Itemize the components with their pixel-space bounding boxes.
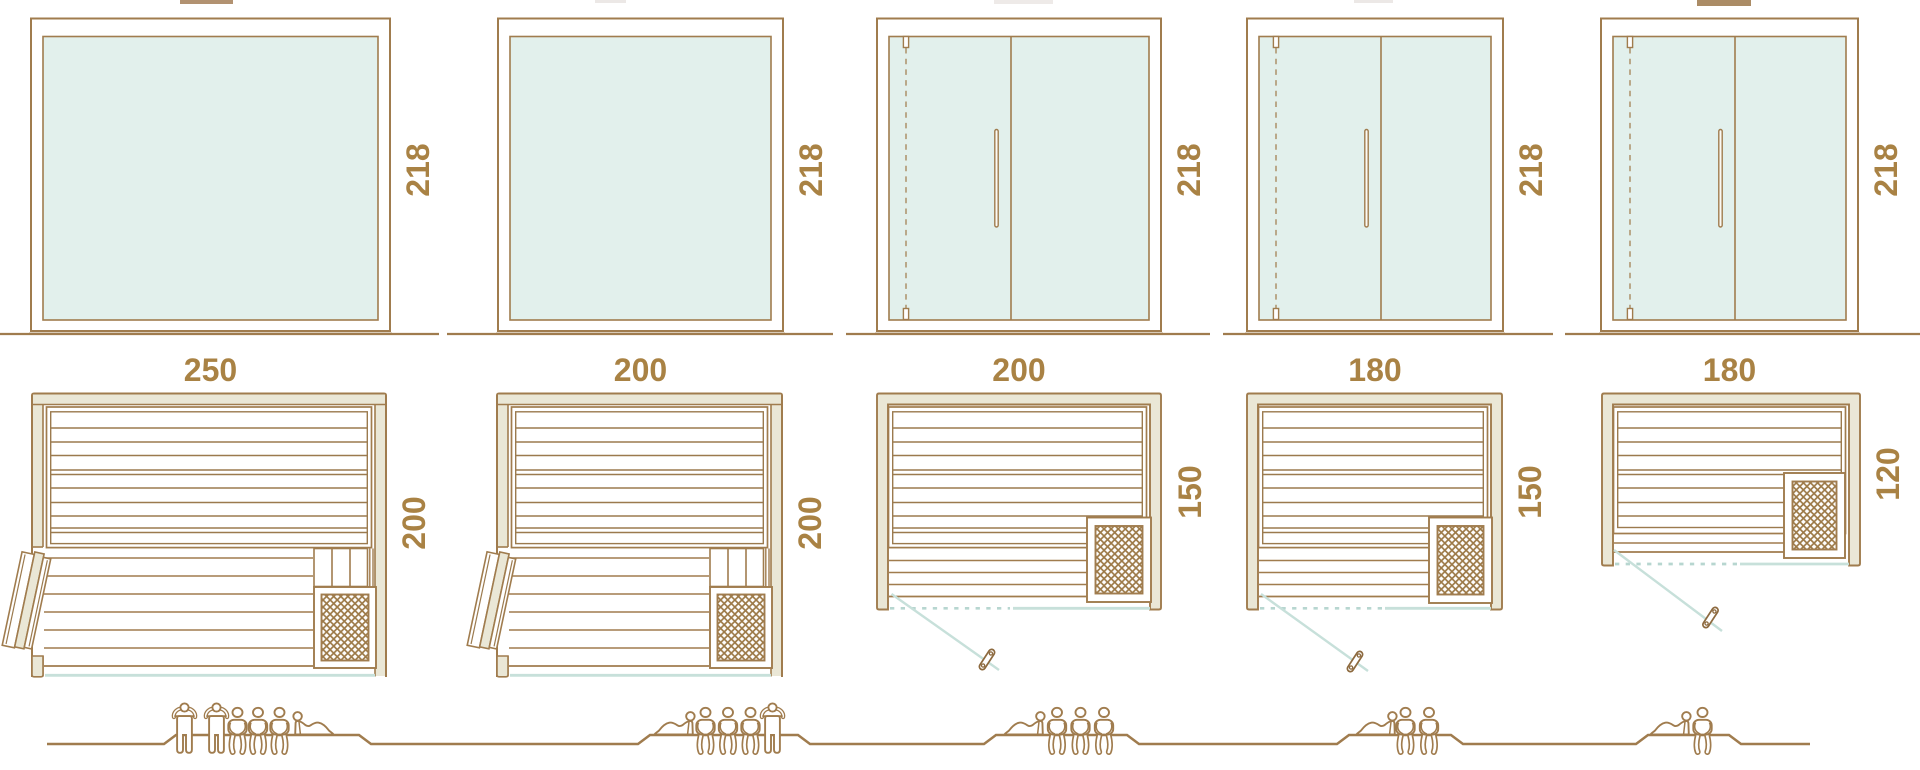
svg-text:250: 250 [184,352,237,388]
svg-text:218: 218 [400,143,436,196]
svg-text:150: 150 [1512,465,1548,518]
svg-text:120: 120 [1870,447,1906,500]
svg-text:200: 200 [396,496,432,549]
svg-text:200: 200 [792,496,828,549]
svg-text:180: 180 [1703,352,1756,388]
svg-text:218: 218 [1868,143,1904,196]
svg-text:218: 218 [793,143,829,196]
svg-text:150: 150 [1172,465,1208,518]
svg-text:218: 218 [1171,143,1207,196]
svg-text:218: 218 [1513,143,1549,196]
svg-text:180: 180 [1348,352,1401,388]
svg-text:200: 200 [614,352,667,388]
svg-text:200: 200 [992,352,1045,388]
